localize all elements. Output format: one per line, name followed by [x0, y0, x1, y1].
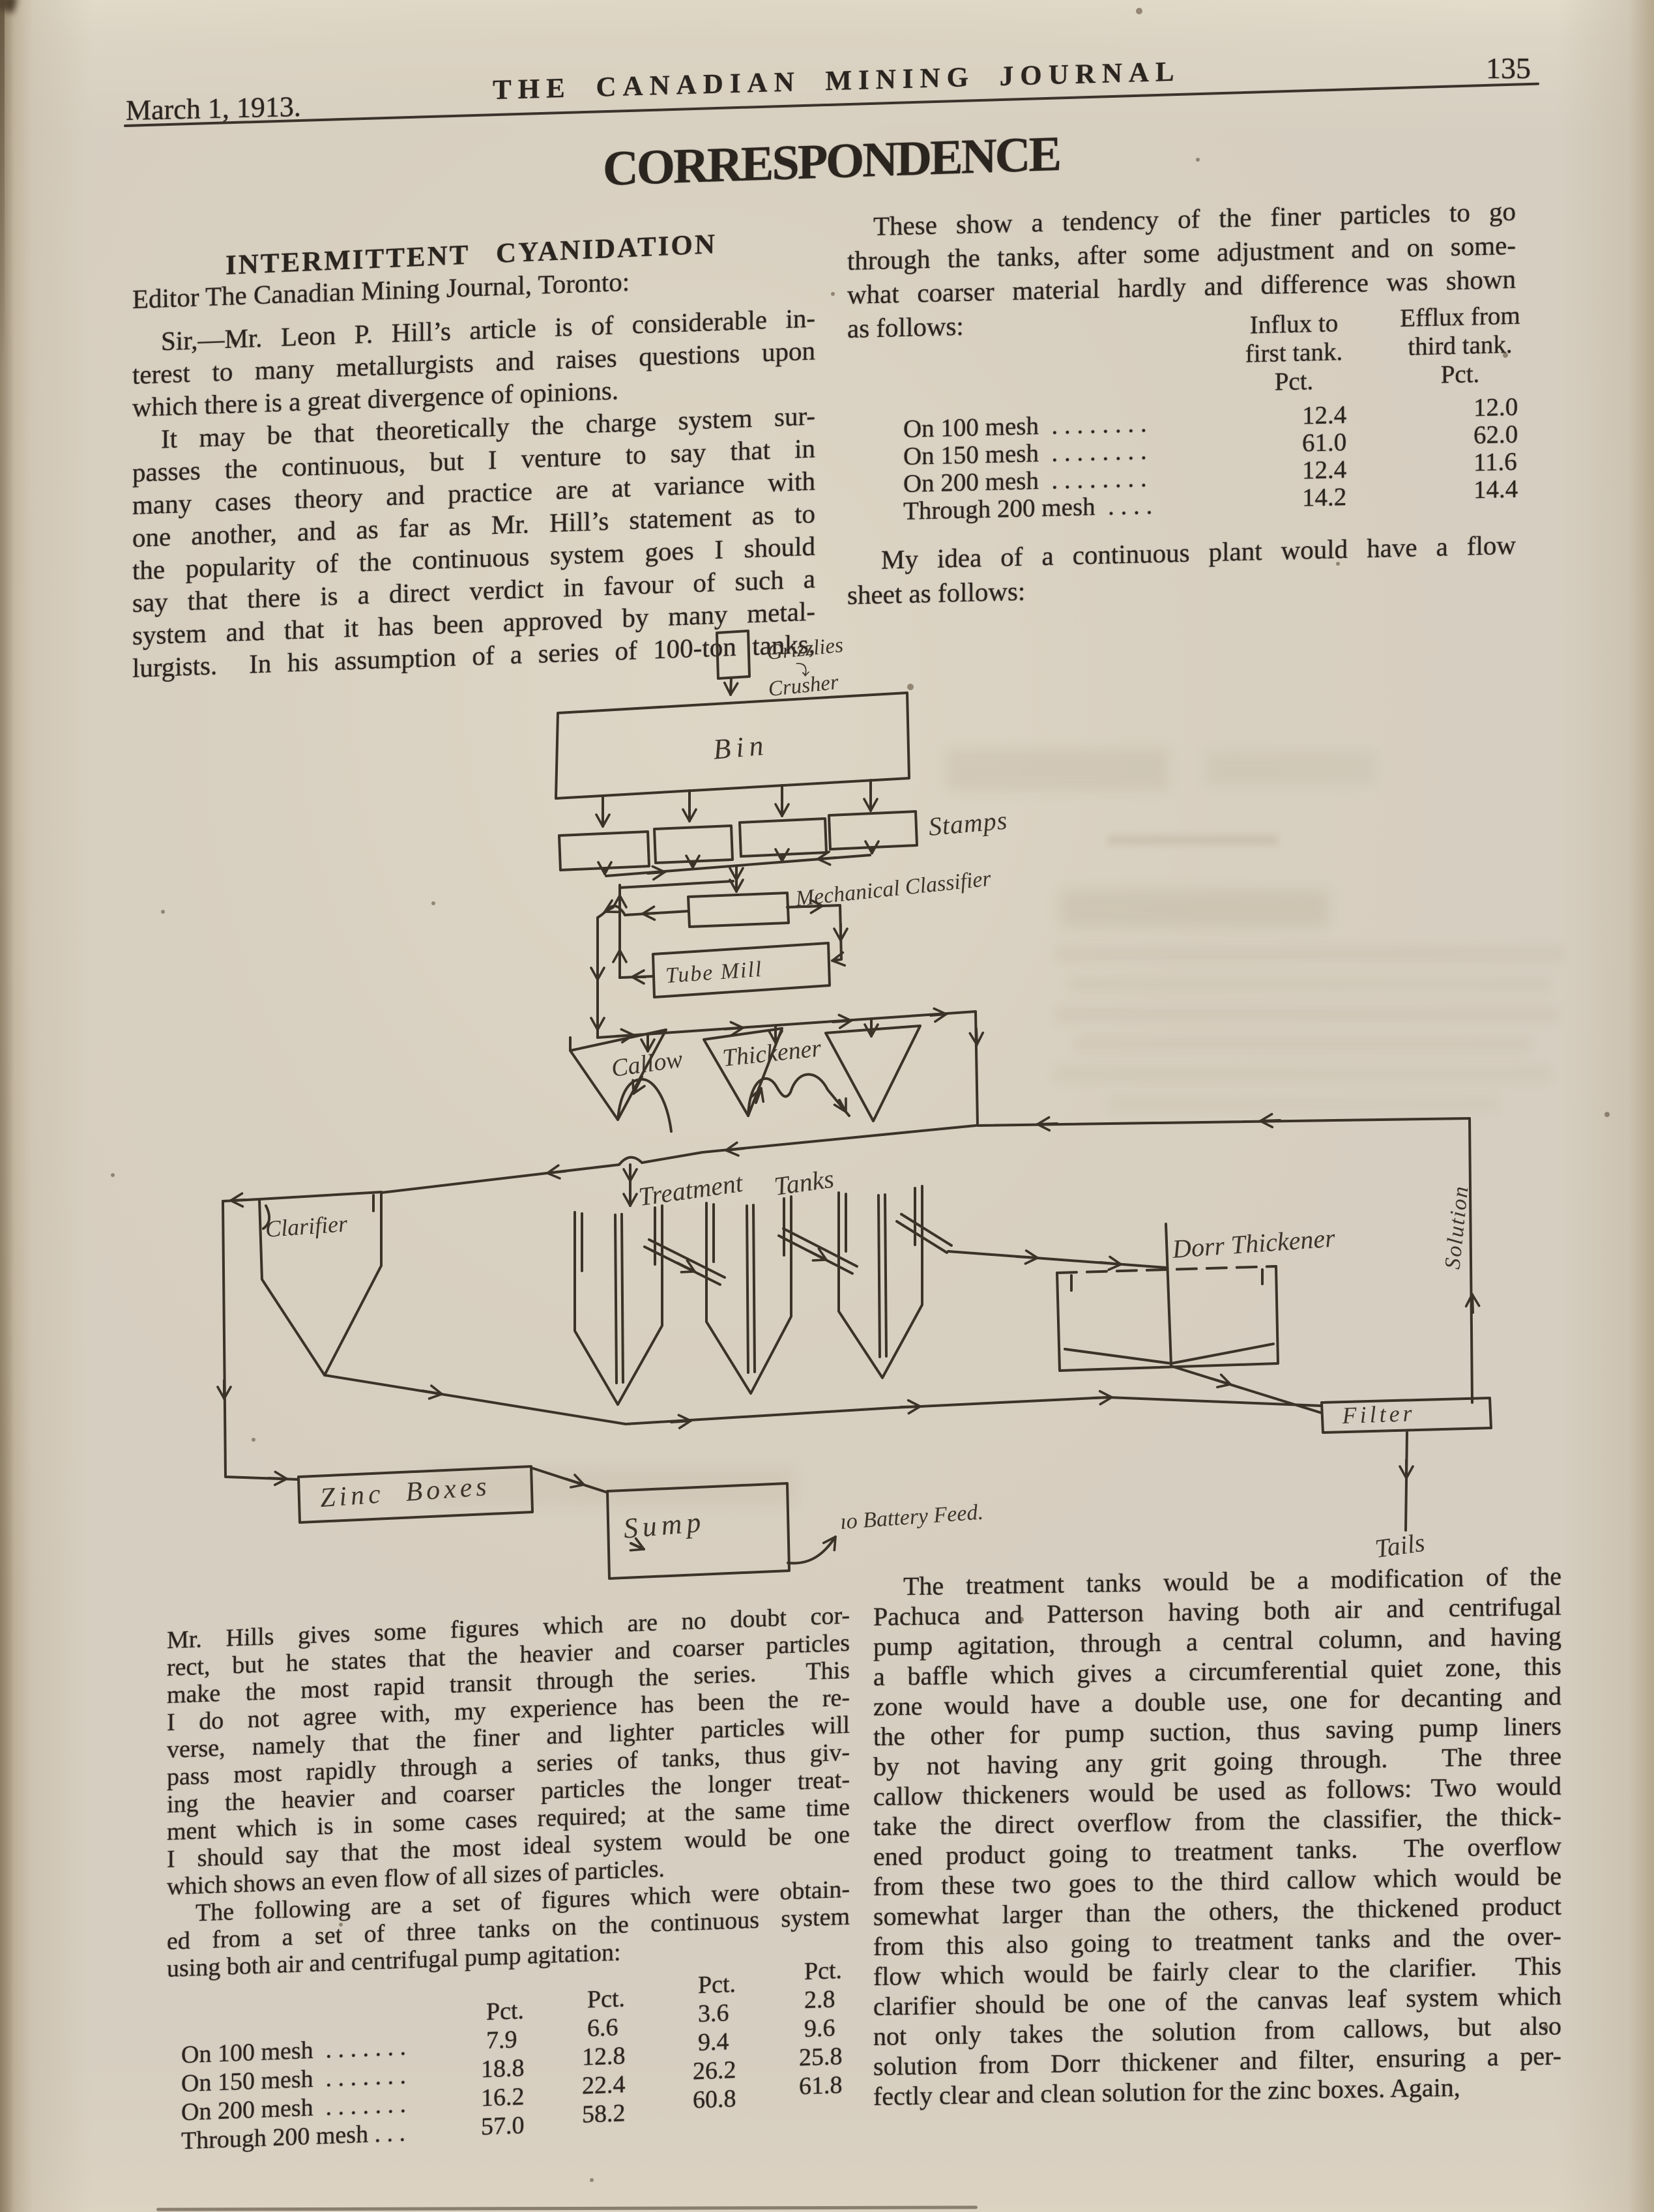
svg-text:Clarifier: Clarifier: [265, 1210, 349, 1242]
svg-text:Thickener: Thickener: [721, 1034, 823, 1072]
svg-text:Bin: Bin: [712, 729, 770, 765]
svg-text:Dorr Thickener: Dorr Thickener: [1170, 1223, 1336, 1264]
svg-text:Stamps: Stamps: [927, 806, 1009, 841]
svg-text:Zinc Boxes: Zinc Boxes: [319, 1472, 491, 1513]
svg-text:Treatment: Treatment: [637, 1168, 745, 1212]
svg-text:Mechanical Classifier: Mechanical Classifier: [794, 867, 993, 911]
svg-text:Filter: Filter: [1341, 1400, 1415, 1429]
svg-text:ıo Battery Feed.: ıo Battery Feed.: [839, 1500, 984, 1534]
svg-text:Grizzlies: Grizzlies: [766, 633, 844, 665]
svg-text:Sump: Sump: [622, 1506, 707, 1545]
svg-text:Solution: Solution: [1440, 1184, 1473, 1271]
svg-text:Callow: Callow: [609, 1045, 684, 1083]
svg-text:Tails: Tails: [1373, 1528, 1427, 1564]
svg-text:Tube Mill: Tube Mill: [665, 957, 764, 988]
svg-text:Tanks: Tanks: [772, 1164, 835, 1201]
